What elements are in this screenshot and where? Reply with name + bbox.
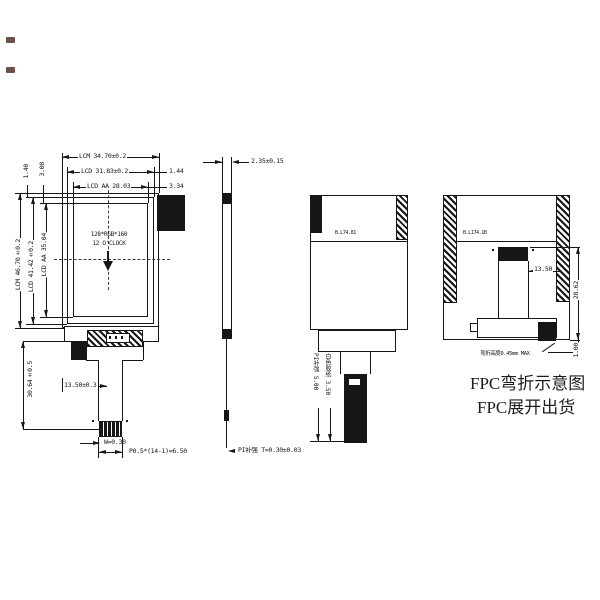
arrow-icon <box>73 185 80 189</box>
arrow-icon <box>141 185 148 189</box>
ic-mark <box>121 336 123 339</box>
arrow-icon <box>100 384 107 388</box>
arrow-icon <box>21 422 25 429</box>
arrow-icon <box>232 160 239 164</box>
registration-mark <box>92 420 94 422</box>
arrow-icon <box>62 155 69 159</box>
bend-note: 弯折高度0.45mm MAX <box>479 352 531 357</box>
fpc-edge <box>86 342 87 360</box>
registration-mark <box>126 420 128 422</box>
arrow-icon <box>215 160 222 164</box>
ext-line <box>530 247 580 248</box>
folded-connector <box>498 247 528 261</box>
ext-line <box>27 185 28 197</box>
centerline-h <box>54 259 170 260</box>
arrow-icon <box>115 450 122 454</box>
arrow-icon <box>31 197 35 204</box>
ext-line <box>40 317 73 318</box>
ext-line <box>310 441 344 442</box>
side-bottom-block <box>222 330 232 339</box>
fpc-connector-pins <box>99 421 122 437</box>
dim-aa-right-gap: 3.34 <box>168 183 184 190</box>
dim-bottom-gap: 1.00 <box>573 342 580 358</box>
component-block <box>71 341 86 360</box>
arrow-icon <box>31 317 35 324</box>
connector-mark-box <box>349 379 360 385</box>
fpc-tail-edge <box>122 360 123 421</box>
caption-fold-title: FPC弯折示意图 <box>470 374 585 394</box>
registration-mark <box>492 249 494 251</box>
fpc-neck-edge <box>370 352 371 374</box>
dim-pad-pitch: P0.5*(14-1)=6.50 <box>128 448 188 455</box>
arrow-icon <box>21 341 25 348</box>
backlight-label: B.L74.81 <box>334 231 357 236</box>
dim-pad-width: W=0.30 <box>103 439 127 446</box>
dim-fpc-length: 30.64±0.5 <box>27 360 34 399</box>
dim-lcd-top-gap: 1.40 <box>23 163 30 179</box>
ext-line <box>15 328 64 329</box>
arrow-icon <box>147 170 154 174</box>
side-top-cap <box>222 193 232 204</box>
fpc-step <box>86 360 98 361</box>
dim-aa-height: LCD AA 35.04 <box>41 232 48 277</box>
arrow-icon <box>44 310 48 317</box>
dim-lcd-height: LCD 41.42±0.2 <box>28 240 35 293</box>
viewing-direction-label: 12 O'CLOCK <box>76 240 142 247</box>
ext-line <box>222 157 223 193</box>
arrow-icon <box>44 203 48 210</box>
side-fpc-tail <box>226 339 227 448</box>
bond-area-line <box>310 241 408 242</box>
caption-ship-title: FPC展开出货 <box>477 398 575 418</box>
arrow-icon <box>576 247 580 254</box>
leader-line <box>542 343 555 352</box>
dim-thickness: 2.35±0.15 <box>250 158 285 165</box>
ext-line <box>62 153 63 193</box>
dim-aa-width: LCD AA 28.03 <box>86 183 131 190</box>
fpc-notch <box>470 323 478 332</box>
arrow-icon <box>316 434 320 441</box>
ext-line <box>23 341 71 342</box>
ext-line <box>26 324 67 325</box>
backlight-label: B.L174.1B <box>462 231 488 236</box>
arrow-icon <box>67 170 74 174</box>
arrow-icon <box>152 155 159 159</box>
dim-fpc-offset: 13.50 <box>533 266 553 273</box>
lcd-module-drawing: 128*RGB*160 12 O'CLOCK LCM 34.70±0.2 <box>0 0 600 600</box>
fpc-step <box>123 360 143 361</box>
edge-hatch <box>396 195 408 240</box>
dim-line <box>23 341 24 429</box>
dim-fold-height: 28.62 <box>573 280 580 300</box>
dim-lcd-right-gap: 1.44 <box>168 168 184 175</box>
arrow-icon <box>18 193 22 200</box>
active-area-outline <box>73 203 148 317</box>
side-profile-body <box>222 193 232 330</box>
arrow-icon <box>328 434 332 441</box>
ext-line <box>23 429 99 430</box>
dim-aa-top-gap: 3.00 <box>39 161 46 177</box>
dim-lcm-height: LCM 46.70±0.2 <box>15 238 22 291</box>
arrow-icon <box>18 321 22 328</box>
ext-line <box>148 182 149 203</box>
arrow-icon <box>228 449 235 453</box>
edge-hatch <box>556 195 570 302</box>
fpc-band-edge <box>498 261 499 318</box>
stamp-mark <box>6 67 15 73</box>
dim-lcd-width: LCD 31.83±0.2 <box>80 168 129 175</box>
resolution-label: 128*RGB*160 <box>76 231 142 238</box>
dim-ic-offset: 13.50±0.3 <box>63 382 98 389</box>
ext-line <box>43 185 44 203</box>
fpc-neck-edge <box>340 352 341 374</box>
stiffener-callout: PI补强 5.00 <box>312 352 319 391</box>
dim-line <box>154 172 167 173</box>
ext-line <box>15 193 62 194</box>
arrow-icon <box>576 333 580 340</box>
registration-mark <box>532 249 534 251</box>
ext-line <box>98 437 99 458</box>
side-stiffener-block <box>224 410 229 421</box>
module-outline <box>310 195 408 330</box>
stamp-mark <box>6 37 15 43</box>
bond-area-line <box>457 241 556 242</box>
ext-line <box>122 437 123 458</box>
ic-mark <box>109 336 111 339</box>
dim-line <box>148 187 167 188</box>
stiffener-pad <box>538 322 556 341</box>
viewing-arrow-icon <box>103 261 113 271</box>
dim-lcm-width: LCM 34.70±0.2 <box>78 153 127 160</box>
tape-callout: 白色胶纸 3.50 <box>324 352 331 396</box>
fpc-tail-edge <box>98 360 99 421</box>
fpc-bond-block <box>157 195 185 231</box>
ic-mark <box>115 336 117 339</box>
dim-line <box>239 162 249 163</box>
arrow-icon <box>99 450 106 454</box>
edge-block <box>310 195 322 233</box>
fpc-wide-section <box>318 330 396 352</box>
edge-hatch <box>443 195 457 303</box>
fpc-edge <box>143 342 144 360</box>
stiffener-note: PI补强 T=0.30±0.03 <box>237 447 302 454</box>
